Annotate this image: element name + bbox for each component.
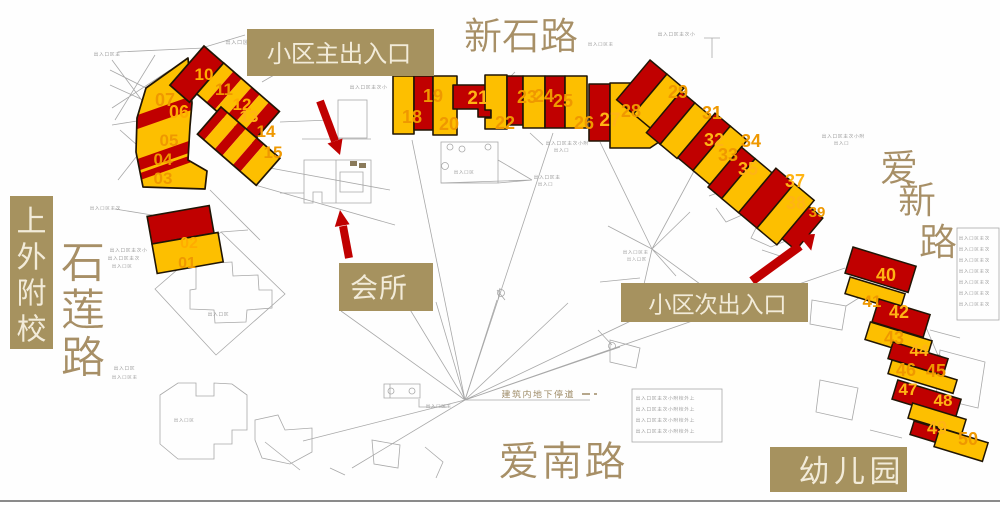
svg-text:44: 44 [910,341,929,360]
svg-text:29: 29 [668,82,688,102]
svg-text:25: 25 [553,91,573,111]
svg-text:14: 14 [257,122,276,141]
svg-text:27: 27 [599,110,620,131]
svg-text:39: 39 [809,204,826,221]
svg-text:42: 42 [889,302,909,322]
svg-text:11: 11 [215,80,233,99]
svg-text:33: 33 [718,145,738,165]
svg-text:22: 22 [495,113,515,133]
svg-text:26: 26 [574,113,594,133]
svg-text:46: 46 [896,360,916,380]
svg-text:45: 45 [926,361,946,381]
svg-text:05: 05 [160,131,179,150]
svg-text:20: 20 [439,114,459,134]
svg-text:40: 40 [876,265,896,285]
svg-text:02: 02 [180,235,198,252]
svg-text:21: 21 [467,88,489,109]
svg-text:49: 49 [927,418,947,438]
svg-text:48: 48 [934,391,953,410]
svg-text:15: 15 [264,143,283,162]
svg-text:37: 37 [785,171,805,191]
svg-text:07: 07 [155,90,175,110]
svg-text:43: 43 [884,328,904,348]
svg-text:34: 34 [741,131,761,151]
svg-text:10: 10 [195,65,214,84]
svg-text:18: 18 [402,107,422,127]
svg-text:19: 19 [423,86,443,106]
svg-text:03: 03 [154,169,173,188]
svg-text:28: 28 [621,101,641,121]
svg-text:24: 24 [534,86,554,106]
svg-text:31: 31 [702,103,722,123]
svg-text:01: 01 [178,255,196,272]
svg-text:04: 04 [154,150,173,169]
svg-text:50: 50 [958,429,978,449]
svg-text:35: 35 [738,159,758,179]
svg-text:38: 38 [786,193,806,213]
svg-text:47: 47 [899,380,918,399]
svg-text:41: 41 [863,292,882,311]
